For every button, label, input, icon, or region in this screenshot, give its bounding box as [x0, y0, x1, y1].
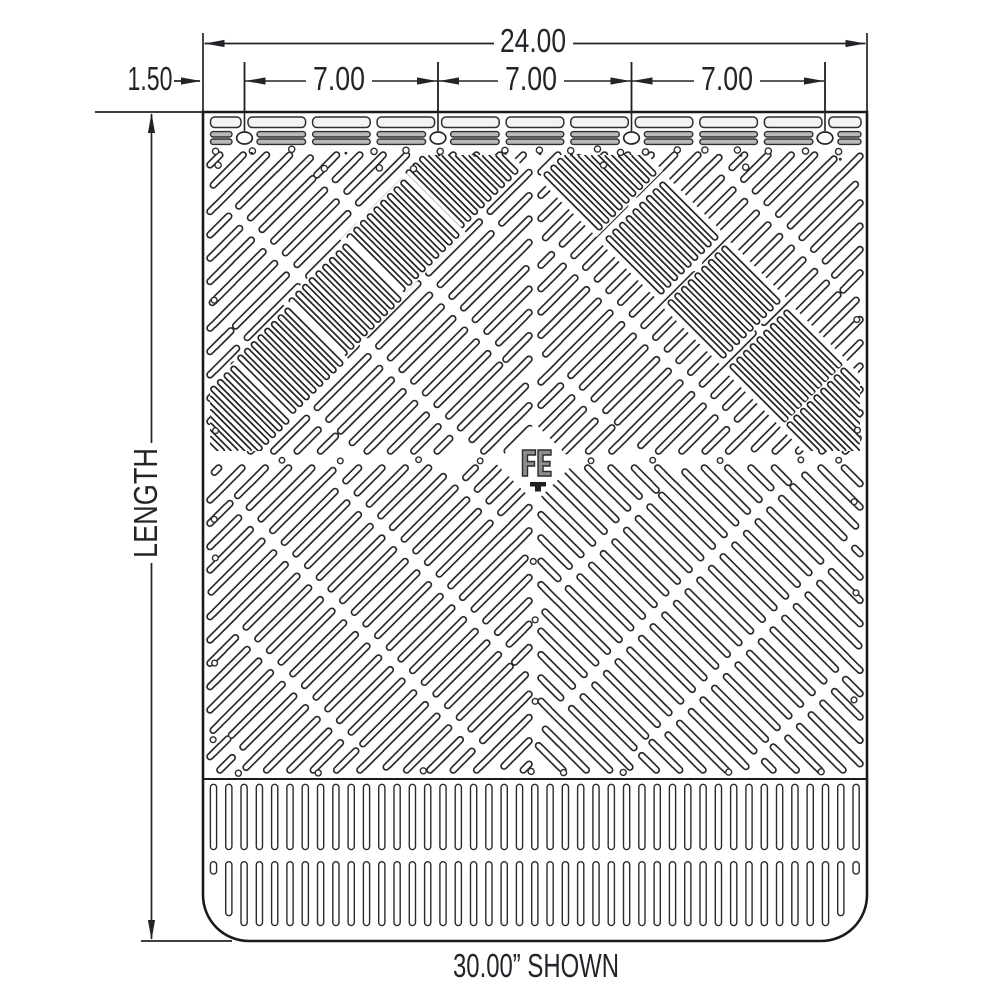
- svg-text:LENGTH: LENGTH: [127, 448, 164, 558]
- svg-text:1.50: 1.50: [128, 60, 173, 97]
- svg-text:30.00” SHOWN: 30.00” SHOWN: [453, 947, 619, 984]
- svg-text:7.00: 7.00: [313, 60, 365, 97]
- svg-text:7.00: 7.00: [505, 60, 557, 97]
- svg-text:24.00: 24.00: [500, 22, 566, 59]
- svg-text:7.00: 7.00: [701, 60, 753, 97]
